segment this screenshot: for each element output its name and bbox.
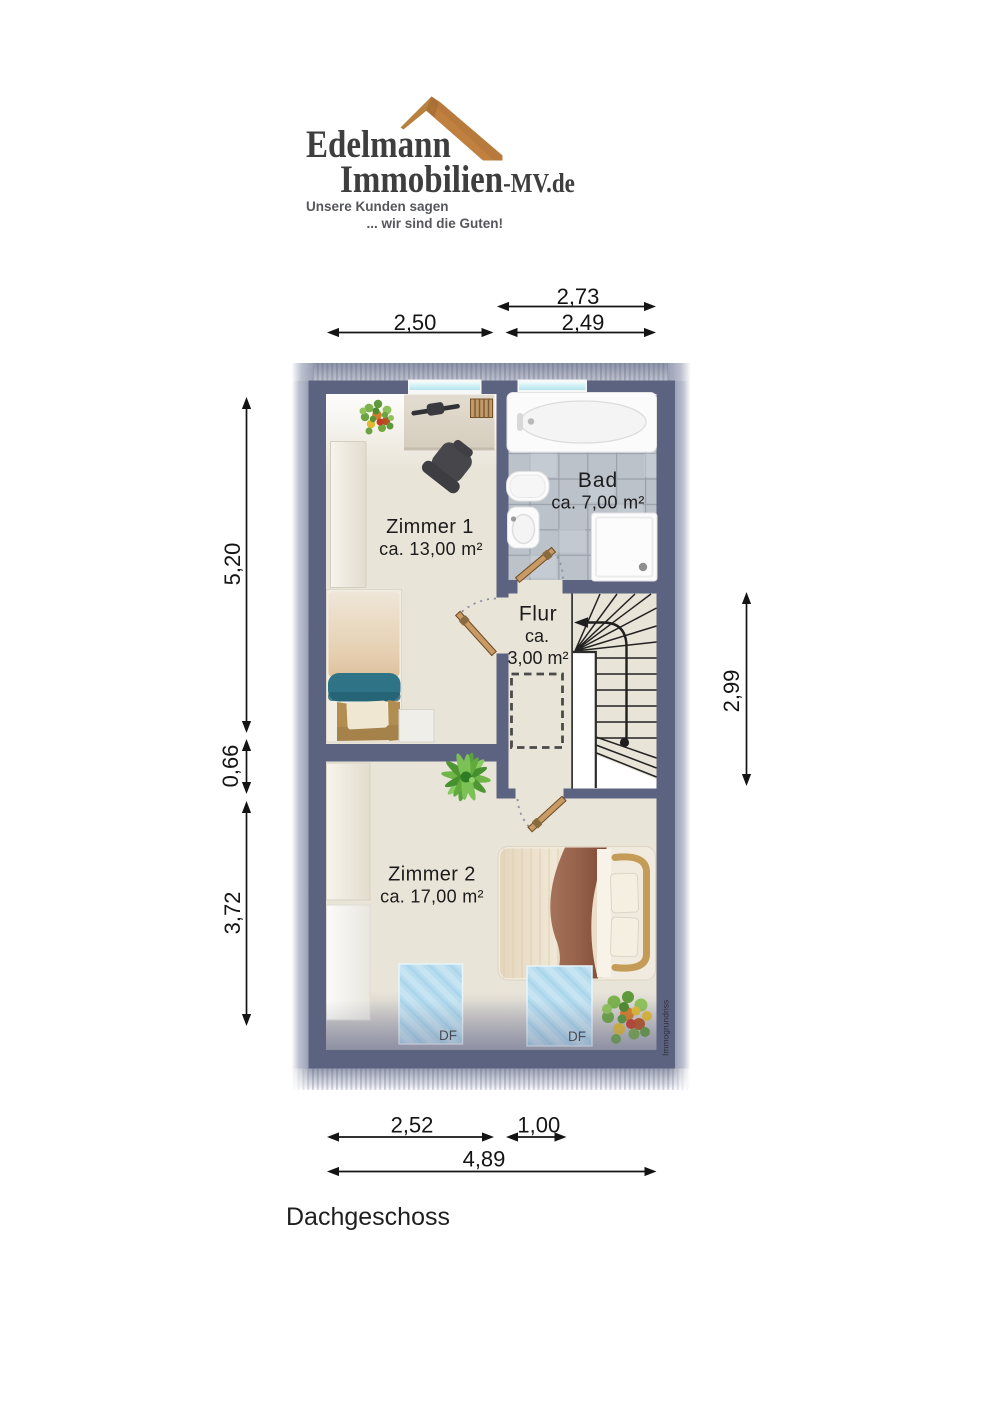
svg-text:ca. 13,00 m²: ca. 13,00 m² <box>379 539 483 559</box>
svg-text:Zimmer 2: Zimmer 2 <box>388 864 476 886</box>
svg-text:ca.: ca. <box>525 626 549 646</box>
svg-text:2,50: 2,50 <box>394 310 437 335</box>
svg-text:3,00 m²: 3,00 m² <box>507 648 568 668</box>
svg-text:ca. 7,00 m²: ca. 7,00 m² <box>551 493 644 513</box>
svg-text:2,52: 2,52 <box>391 1113 434 1138</box>
svg-text:2,49: 2,49 <box>562 310 605 335</box>
svg-text:0,66: 0,66 <box>218 745 243 788</box>
svg-text:Unsere Kunden sagen: Unsere Kunden sagen <box>306 199 449 214</box>
svg-text:1,00: 1,00 <box>517 1113 560 1138</box>
svg-text:2,99: 2,99 <box>719 670 744 713</box>
svg-text:... wir sind die Guten!: ... wir sind die Guten! <box>366 216 503 231</box>
svg-text:4,89: 4,89 <box>463 1147 506 1172</box>
svg-text:Dachgeschoss: Dachgeschoss <box>286 1203 450 1231</box>
svg-text:Immogrundriss: Immogrundriss <box>661 1000 671 1056</box>
svg-text:Bad: Bad <box>578 469 618 492</box>
svg-text:Flur: Flur <box>519 603 557 626</box>
svg-text:ca. 17,00 m²: ca. 17,00 m² <box>380 887 484 907</box>
svg-text:3,72: 3,72 <box>220 892 245 935</box>
svg-text:Zimmer 1: Zimmer 1 <box>386 516 474 538</box>
svg-text:5,20: 5,20 <box>220 543 245 586</box>
svg-text:2,73: 2,73 <box>557 284 600 309</box>
